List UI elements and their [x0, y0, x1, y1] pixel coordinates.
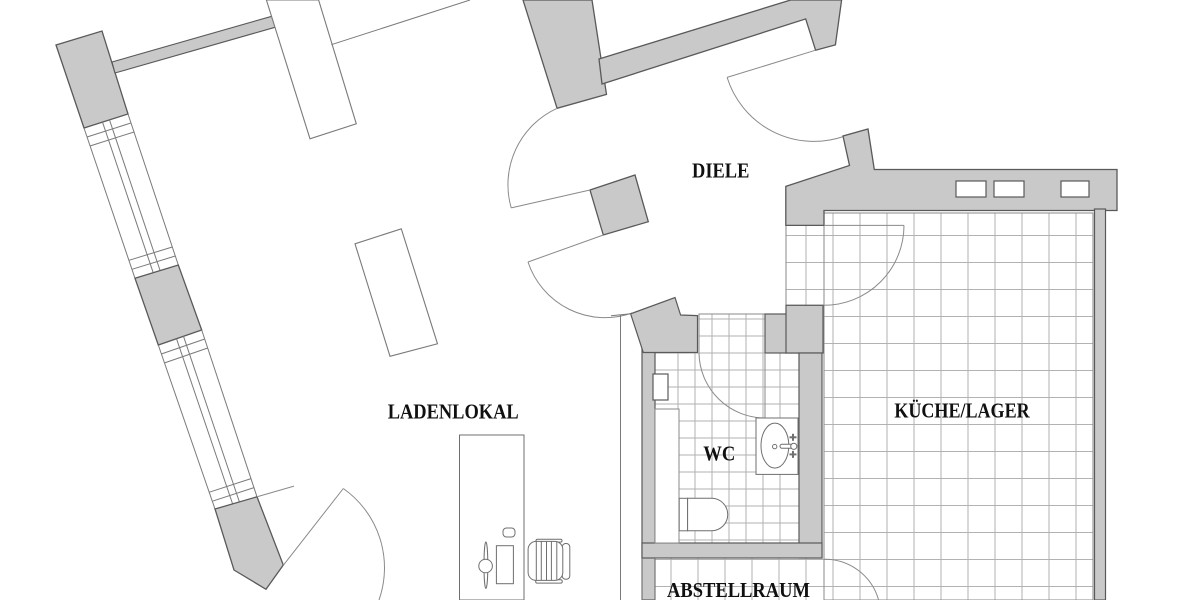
svg-text:KÜCHE/LAGER: KÜCHE/LAGER: [894, 399, 1030, 423]
svg-text:DIELE: DIELE: [692, 158, 749, 182]
svg-text:WC: WC: [703, 442, 735, 466]
svg-text:ABSTELLRAUM: ABSTELLRAUM: [667, 578, 810, 600]
svg-text:LADENLOKAL: LADENLOKAL: [388, 399, 519, 423]
